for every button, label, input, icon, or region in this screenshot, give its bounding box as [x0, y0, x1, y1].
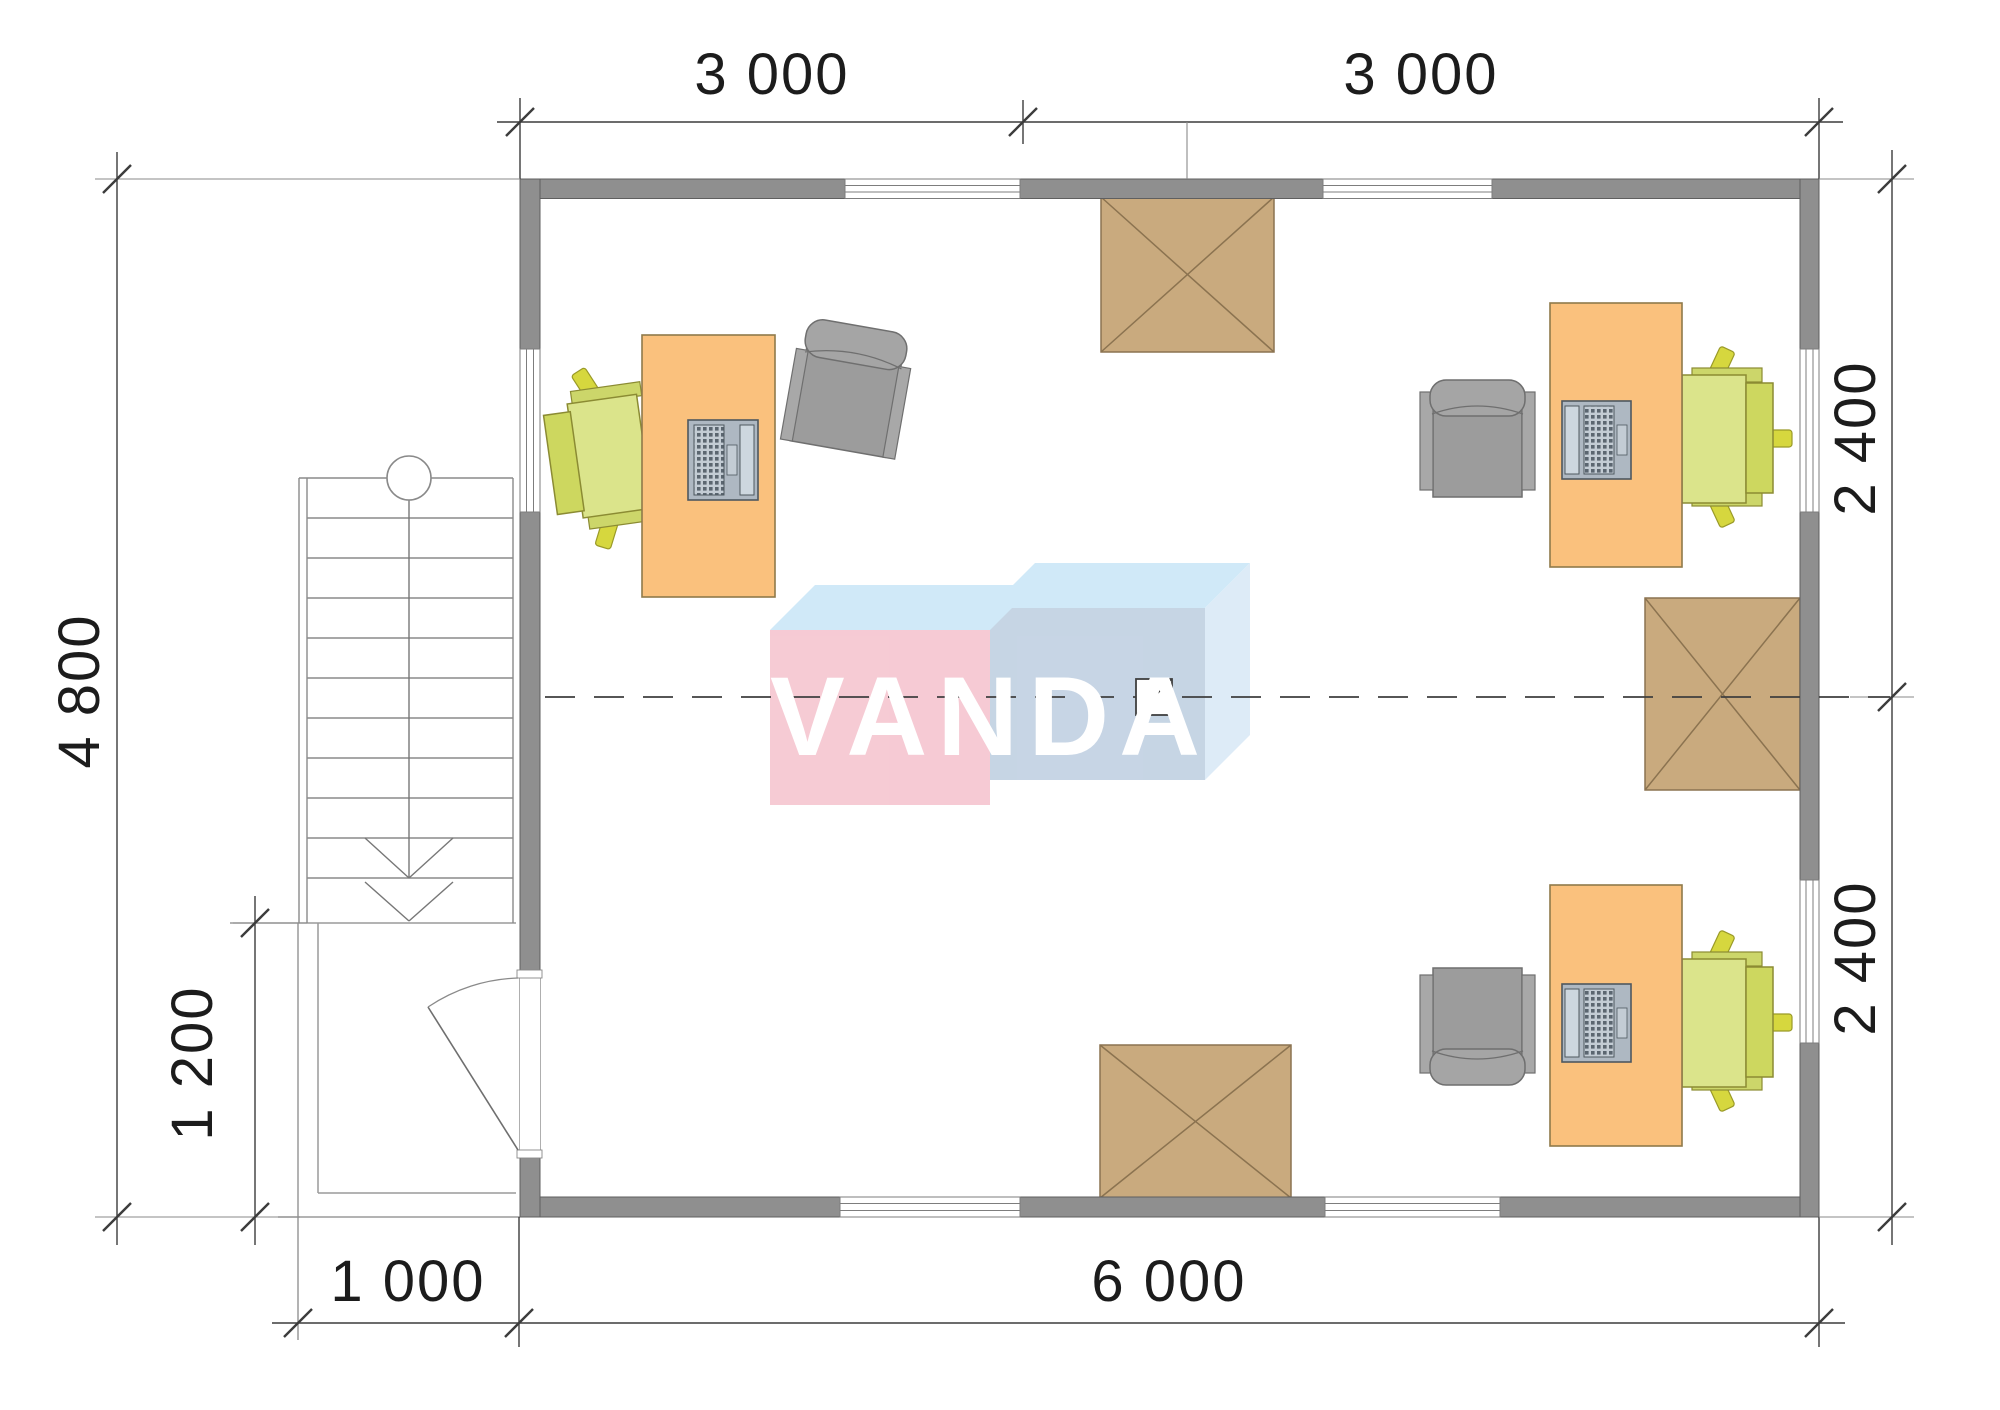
window-right-upper: [1800, 349, 1819, 512]
dim-label-bottom-left: 1 000: [258, 1251, 558, 1313]
window-bottom-right: [1325, 1197, 1500, 1217]
desk-cluster-top-left: [538, 316, 917, 597]
wall-top: [520, 179, 1819, 199]
entry-door: [428, 970, 542, 1158]
dim-chain-top: [497, 98, 1843, 179]
desk-cluster-top-right: [1420, 303, 1792, 567]
laptop: [1562, 401, 1631, 479]
dim-label-top-right: 3 000: [1271, 44, 1571, 106]
desk-cluster-bottom-right: [1420, 885, 1792, 1146]
door-leaf: [428, 1007, 518, 1150]
stairs: [299, 456, 513, 923]
dim-label-right-lower: 2 400: [1825, 808, 1887, 1108]
armchair: [1420, 968, 1535, 1085]
window-top-left: [845, 179, 1020, 199]
wall-bottom: [540, 1197, 1819, 1217]
laptop: [1562, 984, 1631, 1062]
dim-label-right-upper: 2 400: [1825, 288, 1887, 588]
hatch-box-top: [1101, 197, 1274, 352]
dim-chain-left-porch: [233, 896, 307, 1245]
hatch-box-bottom: [1100, 1045, 1291, 1198]
door-swing-arc: [428, 978, 518, 1007]
task-chair: [1682, 346, 1792, 528]
floor-plan-page: 3 000 3 000 1 000 6 000 4 800 1 200 2 40…: [0, 0, 2000, 1410]
window-bottom-left: [840, 1197, 1020, 1217]
laptop: [688, 420, 758, 500]
armchair: [1420, 380, 1535, 497]
dim-label-top-left: 3 000: [622, 44, 922, 106]
vanda-logo-text: VANDA: [740, 652, 1240, 782]
window-top-right: [1323, 179, 1492, 199]
logo-pink-box-top-face: [770, 585, 1035, 630]
wall-right: [1800, 179, 1819, 1217]
dim-label-bottom-right: 6 000: [1019, 1251, 1319, 1313]
hatch-box-right: [1645, 598, 1800, 790]
stair-newel-circle: [387, 456, 431, 500]
dim-label-left-height: 4 800: [49, 541, 111, 841]
armchair: [780, 316, 916, 459]
dim-label-left-porch: 1 200: [162, 913, 224, 1213]
window-right-lower: [1800, 880, 1819, 1043]
window-left: [520, 349, 540, 512]
task-chair: [1682, 930, 1792, 1112]
